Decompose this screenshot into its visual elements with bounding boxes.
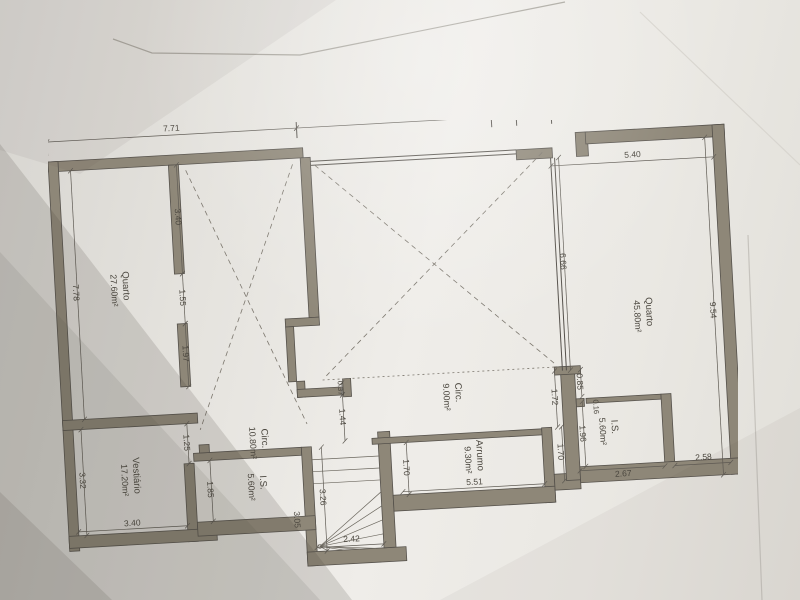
dim-label: 5.05 xyxy=(385,120,402,121)
dim-label: 7.78 xyxy=(71,284,82,301)
dim-label: 2.67 xyxy=(615,468,632,479)
dim-label: 1.72 xyxy=(549,389,560,406)
walls xyxy=(48,124,738,579)
dim-label: 7.71 xyxy=(163,123,180,134)
dim-label: 9.54 xyxy=(708,302,719,319)
wall xyxy=(300,157,319,317)
room-area-label: 17.20m² xyxy=(119,464,131,497)
dim-label: 1.96 xyxy=(578,425,589,442)
wall xyxy=(286,327,297,382)
room-label: I.S. xyxy=(257,475,269,490)
room-area-label: 9.30m² xyxy=(463,446,475,474)
dim-label: 3.26 xyxy=(318,489,329,506)
thin-line xyxy=(296,122,297,138)
void-edge xyxy=(323,367,563,380)
dim-line xyxy=(296,120,491,128)
dim-label: 1.44 xyxy=(337,408,348,425)
room-label: Circ. xyxy=(452,382,464,402)
room-label: I.S. xyxy=(608,419,620,434)
dim-label: 0.85 xyxy=(575,373,586,390)
room-area-label: 10.80m² xyxy=(247,427,259,460)
wall xyxy=(285,317,319,327)
room-label: Vestiário xyxy=(130,457,143,494)
wall xyxy=(48,161,80,551)
wall xyxy=(301,447,318,566)
void-diagonal xyxy=(186,164,307,430)
room-area-label: 45.80m² xyxy=(632,300,644,333)
room-area-label: 27.60m² xyxy=(108,274,120,307)
wall xyxy=(193,447,301,461)
dim-label: 0.16 xyxy=(591,399,601,414)
wall xyxy=(585,124,724,144)
room-area-label: 9.00m² xyxy=(441,383,453,411)
wall xyxy=(372,429,542,444)
wall xyxy=(580,458,738,483)
wall xyxy=(378,431,396,547)
thin-line xyxy=(516,120,517,126)
dim-label: 1.70 xyxy=(556,443,567,460)
room-label: Arrumo xyxy=(473,440,486,472)
thin-line xyxy=(551,120,552,124)
wall xyxy=(307,547,407,567)
dim-label: 6.66 xyxy=(558,253,569,270)
void-diagonal xyxy=(186,164,307,430)
dim-label: 1.97 xyxy=(180,345,191,362)
wall xyxy=(516,148,553,160)
wall xyxy=(712,124,738,474)
dim-label: 1.55 xyxy=(177,289,188,306)
wall xyxy=(393,486,556,511)
thin-line xyxy=(491,120,492,127)
room-label: Quarto xyxy=(119,271,132,301)
labels: 7.71 5.05 1.10 0.85 4.21 5.40 6.66 9.54 … xyxy=(58,120,730,559)
dim-label: 1.85 xyxy=(205,481,216,498)
dim-label: 3.40 xyxy=(124,517,141,528)
wall xyxy=(576,398,584,406)
room-label: Circ. xyxy=(258,428,270,448)
dim-label: 0.37 xyxy=(336,380,346,395)
dim-label: 3.32 xyxy=(77,472,88,489)
void-cross-lines xyxy=(186,150,565,430)
dim-label: 2.42 xyxy=(343,533,360,544)
dim-label: 5.40 xyxy=(624,149,641,160)
dim-label: 3.05 xyxy=(292,511,303,528)
room-area-label: 5.60m² xyxy=(597,417,609,445)
wall xyxy=(199,444,209,453)
floor-plan-drawing: 7.71 5.05 1.10 0.85 4.21 5.40 6.66 9.54 … xyxy=(48,120,738,600)
photographed-floor-plan: 7.71 5.05 1.10 0.85 4.21 5.40 6.66 9.54 … xyxy=(0,0,800,600)
room-area-label: 5.60m² xyxy=(246,473,258,501)
dim-label: 1.25 xyxy=(181,434,192,451)
room-label: Quarto xyxy=(642,297,655,327)
void-diagonal xyxy=(315,152,554,375)
wall xyxy=(661,394,675,462)
dim-label: 2.58 xyxy=(695,451,712,462)
dim-label: 5.51 xyxy=(466,476,483,487)
dim-label: 1.70 xyxy=(401,459,412,476)
dim-label: 3.40 xyxy=(173,208,184,225)
